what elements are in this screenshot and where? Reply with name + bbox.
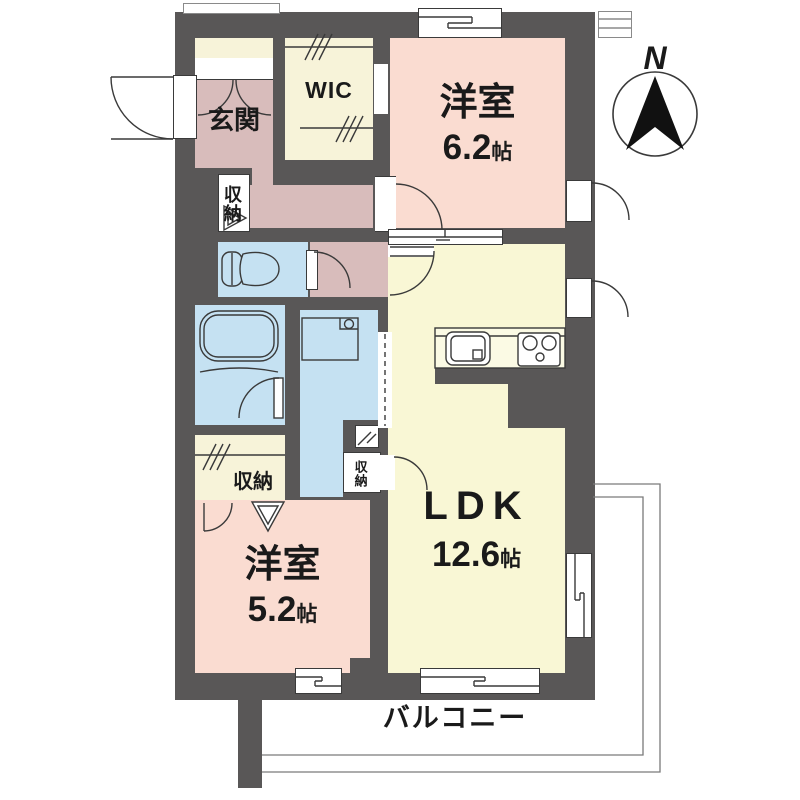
bathtub-icon [200, 311, 278, 372]
pipe-space-marks [358, 432, 376, 445]
entrance-door-arc [111, 77, 173, 139]
ldk-size-number: 12.6 [432, 535, 500, 574]
label-bedroom1: 洋室 [390, 84, 565, 124]
toilet-icon [222, 252, 279, 286]
label-bedroom2-size: 5.2帖 [195, 592, 370, 629]
label-bedroom2-storage: 収納 [215, 472, 291, 493]
window-bedroom1-right-arc [592, 183, 629, 220]
bedroom1-size-unit: 帖 [491, 141, 512, 164]
label-hall-storage: 収納 [222, 177, 241, 231]
bedroom1-door-arc [396, 184, 442, 230]
label-bedroom1-size: 6.2帖 [390, 130, 565, 167]
bedroom2-size-unit: 帖 [296, 603, 317, 626]
gas-stove-icon [518, 333, 560, 366]
label-bedroom2: 洋室 [195, 546, 370, 586]
label-ldk-size: 12.6帖 [388, 537, 565, 574]
label-genkan: 玄関 [195, 107, 273, 134]
north-arrow-icon [613, 72, 697, 156]
label-ldk-storage: 収納 [353, 455, 367, 493]
label-wic: WIC [285, 78, 373, 102]
ledge-lines [598, 19, 632, 28]
toilet-door-arc [314, 252, 350, 288]
floorplan-canvas: 玄関 WIC 洋室 6.2帖 LDK 12.6帖 洋室 5.2帖 バルコニー 収… [0, 0, 800, 800]
label-north: N [630, 42, 680, 76]
bedroom1-size-number: 6.2 [443, 128, 492, 167]
ldk-size-unit: 帖 [500, 548, 521, 571]
washing-machine-pan-icon [302, 318, 358, 360]
kitchen-sink-icon [446, 332, 490, 365]
label-balcony: バルコニー [330, 704, 580, 732]
sliding-door-detail [388, 230, 503, 240]
ldk-door-arc [390, 247, 434, 295]
bedroom2-size-number: 5.2 [248, 590, 297, 629]
window-ldk-right-arc [592, 281, 628, 317]
label-ldk: LDK [388, 485, 565, 527]
bath-door [239, 378, 283, 418]
